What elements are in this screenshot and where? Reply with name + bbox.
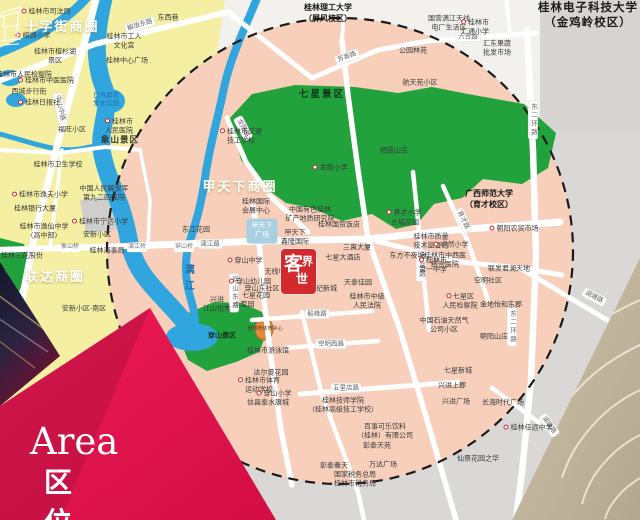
- map-label: 漓江路: [198, 239, 222, 248]
- map-label: 桂林市司法局: [22, 9, 71, 18]
- map-label: 安新小区: [83, 232, 111, 241]
- banner-title-en: Area: [30, 420, 118, 463]
- logo-char-3: 界: [302, 253, 313, 269]
- map-label: 广西师范大学 （育才校区）: [465, 189, 513, 211]
- map-label: 东二环路: [507, 308, 516, 346]
- map-label: 桂林电子科技大学 （金鸡岭校区）: [538, 1, 638, 31]
- map-label: 东西巷: [158, 15, 179, 24]
- map-label: 福旺小区: [58, 127, 86, 136]
- map-label: 安新小区-南区: [62, 306, 106, 315]
- map-label: 联达商圈: [25, 269, 85, 285]
- map-label: 桂林三花股份: [1, 253, 43, 262]
- map-label: 象山景区: [101, 135, 139, 146]
- map-label: 彰泰天苑: [363, 443, 391, 452]
- map-label: 五里店路: [331, 383, 361, 392]
- map-label: 东二环路: [528, 101, 537, 139]
- map-label: 中国人民解放军 第九二四医院: [80, 185, 129, 203]
- map-label: 桂林市逸仙中学 （高中部）: [20, 223, 69, 241]
- map-label: 桂林银行大厦: [14, 206, 56, 215]
- map-label: 朝阳山庄: [480, 334, 508, 343]
- map-label: 桂林市卫生学校: [34, 162, 83, 171]
- map-label: 西城步行街: [12, 89, 47, 98]
- map-label: 桂林市交通 技工学校: [220, 128, 262, 146]
- map-label: 中国石油天然气 公司小区: [420, 317, 469, 335]
- map-label: 桂林任远中学: [504, 425, 553, 434]
- map-label: 育才小学: [387, 210, 422, 219]
- map-label: 桂林市宁远小学: [72, 219, 128, 228]
- map-label: 日月双塔 文化公园: [93, 92, 119, 108]
- map-label: 芳香路: [334, 49, 359, 66]
- map-label: 穿山中学: [228, 258, 263, 267]
- map-label: 甲天下 广场: [247, 219, 278, 244]
- map-label: 航天苑小区: [403, 80, 438, 89]
- map-label: 漓江桥: [127, 244, 147, 252]
- map-label: 天泰佳园: [344, 280, 372, 289]
- map-label: 桂林技师学院 （桂林高级技工学校）: [308, 397, 378, 415]
- map-label: 彰泰春天: [320, 463, 348, 472]
- map-label: 空明社区: [474, 278, 502, 287]
- logo-char-2: 世: [296, 270, 308, 287]
- map-label: 桂林市 人民医院: [105, 118, 133, 136]
- location-map-stage: 十字街商圈甲天下商圈联达商圈桂林电子科技大学 （金鸡岭校区）桂林理工大学 （屏风…: [0, 0, 640, 520]
- map-label: 桂林理工大学 （屏风校区）: [304, 3, 352, 25]
- map-label: 育才路: [454, 207, 472, 232]
- map-label: 七星新城: [444, 368, 472, 377]
- map-label: 兴进广场: [442, 399, 470, 408]
- map-label: 金地怡和东郡: [480, 302, 522, 311]
- map-label: 甲天下 鑫隆国际: [281, 229, 309, 247]
- map-label: 小菜园: [234, 302, 255, 311]
- map-label: 七星景区: [299, 89, 345, 101]
- map-label: 湖塘路: [581, 287, 606, 306]
- map-label: 七星大酒店: [326, 255, 361, 264]
- map-label: 桂林市工人 文化宫: [107, 33, 142, 51]
- map-label: 朝阳农贸市场: [490, 226, 539, 235]
- map-label: 毅峰路: [305, 309, 329, 318]
- map-label: 桂林市中级 人民法院: [350, 293, 385, 311]
- map-label: 空明西路: [316, 339, 346, 348]
- map-label: 桂林市游泳馆: [247, 348, 289, 357]
- map-label: 万达广场: [369, 462, 397, 471]
- map-label: 象山桥: [60, 244, 80, 252]
- map-label: 卓然小学: [434, 242, 469, 251]
- map-label: 桂林中心广场: [106, 58, 148, 67]
- map-label: 联发君澜天地: [488, 266, 530, 275]
- map-label: 兴进 江山悦秀: [203, 296, 231, 314]
- map-label: 穿山桥: [174, 244, 194, 252]
- map-label: 桂林市体育中心: [247, 326, 282, 332]
- pavilion-line-icon: [0, 0, 22, 46]
- map-label: 东江花园: [182, 227, 210, 236]
- map-label: 桂林国际 会展中心: [242, 198, 270, 216]
- map-label: 三真大厦: [343, 245, 371, 254]
- map-label: 信昌泰水康城: [247, 400, 289, 409]
- map-label: 桂林市中西医 结合医院: [424, 252, 466, 270]
- map-label: 桂林市榕杉湖 景区: [34, 48, 76, 66]
- map-label: 七星区 人民检察院: [443, 293, 478, 311]
- banner-title-zh: 区位介绍: [44, 461, 78, 520]
- map-label: 百事可乐饮料 （桂林）有限公司: [357, 423, 413, 441]
- map-label: 解放东路: [124, 16, 155, 33]
- project-logo-keshijie[interactable]: 客 世 界: [281, 249, 316, 294]
- map-label: 桂林市逸夫小学: [12, 192, 68, 201]
- map-label: 长海时代广场: [482, 400, 524, 409]
- map-label: 栖霞山庄: [380, 148, 408, 157]
- map-label: 汇东果蔬 批发市场: [483, 40, 511, 58]
- map-label: 仙景花园之华: [457, 456, 499, 465]
- map-label: 公园林苑: [399, 48, 427, 57]
- map-label: 桂林海事局: [90, 248, 125, 257]
- map-label: 桂林日报社: [18, 100, 60, 109]
- map-label: 龙隐小学: [313, 165, 348, 174]
- map-label: 甲天下商圈: [202, 179, 277, 195]
- map-label: 国家税务总局 桂林市税务局: [334, 471, 376, 489]
- map-label: 长城花园: [391, 220, 419, 229]
- map-label: 桂林市 汇通小学: [461, 19, 489, 37]
- map-label: 穿山小学: [257, 391, 292, 400]
- map-label: 兴进上郡: [438, 383, 466, 392]
- map-label: 漓江: [181, 264, 194, 296]
- map-label: 桂林市中医医院: [18, 78, 74, 87]
- map-label: 七星花园: [242, 293, 270, 302]
- map-label: 穿山景区: [208, 333, 236, 342]
- map-label: 桂林国贸饭店: [318, 222, 360, 231]
